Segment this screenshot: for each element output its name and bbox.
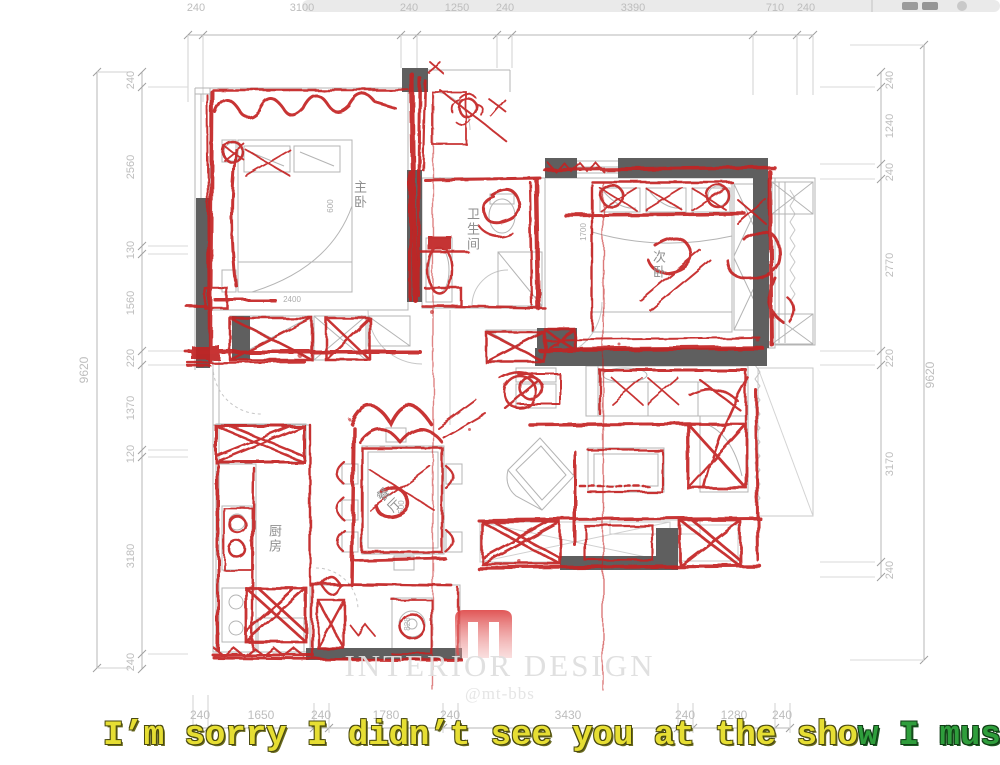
dim-label: 3390 [621, 2, 645, 14]
dim-label: 710 [766, 2, 784, 14]
dim-label: 600 [326, 199, 335, 213]
chrome-button-icon[interactable] [922, 2, 938, 10]
master-bed [222, 140, 352, 292]
dim-label: 3180 [125, 544, 137, 568]
room-label-kitchen: 厨房 [268, 524, 281, 554]
dim-label: 2560 [125, 155, 137, 179]
chrome-button-icon[interactable] [902, 2, 918, 10]
dim-label: 9620 [77, 356, 91, 383]
dim-label: 9620 [923, 361, 937, 388]
lounge-chair [507, 438, 574, 510]
dim-label: 240 [884, 561, 896, 579]
dimension-chain-left-inner: 240 2560 130 1560 220 1370 120 3180 240 [125, 68, 188, 673]
dim-label: 1560 [125, 291, 137, 315]
dim-label: 240 [125, 71, 137, 89]
washing-machine [392, 598, 432, 652]
dim-label: 220 [884, 349, 896, 367]
red-markup-layer [186, 62, 795, 690]
dim-label: 130 [125, 241, 137, 259]
room-label-bathroom: 卫生间 [466, 207, 479, 252]
dim-label: 240 [884, 71, 896, 89]
room-label-master-bedroom: 主卧 [353, 180, 366, 210]
dim-label: 1370 [125, 396, 137, 420]
subtitle-sung: I’m sorry I didn’t see you at the sho [103, 717, 858, 755]
red-hall-sketch [352, 95, 560, 690]
room-label-second-bedroom: 次卧 [652, 250, 665, 280]
dim-label: 1700 [579, 223, 588, 241]
screenshot-root: 240 3100 240 1250 240 3390 710 240 240 [0, 0, 1000, 765]
dimension-chain-left-outer: 9620 [77, 68, 130, 672]
dim-label: 220 [125, 349, 137, 367]
subtitle-bar: I’m sorry I didn’t see you at the show I… [103, 717, 1000, 755]
dim-label: 240 [884, 163, 896, 181]
red-master-sketch [186, 90, 420, 366]
dim-label: 240 [187, 2, 205, 14]
dimension-chain-top: 240 3100 240 1250 240 3390 710 240 [184, 2, 817, 102]
sofa-set [516, 366, 748, 492]
dimension-chain-right-inner: 240 1240 240 2770 220 3170 240 [820, 68, 896, 581]
chrome-circle-icon[interactable] [957, 1, 967, 11]
wall-segment [656, 528, 678, 570]
dim-label: 2770 [884, 253, 896, 277]
watermark-title: INTERIOR DESIGN [0, 648, 1000, 684]
wall-segment [545, 158, 577, 178]
dining-set [342, 428, 462, 570]
dim-label: 3100 [290, 2, 314, 14]
dim-label: 120 [125, 445, 137, 463]
dim-label: 1250 [445, 2, 469, 14]
red-living-sketch [478, 370, 760, 568]
dim-label: 3170 [884, 452, 896, 476]
dim-label: 828 [403, 617, 412, 631]
dim-label: 2400 [283, 295, 301, 304]
dim-label: 240 [496, 2, 514, 14]
dim-label: 240 [400, 2, 418, 14]
subtitle-upcoming: w I musta [858, 717, 1000, 755]
dim-label: 240 [797, 2, 815, 14]
walls-layer [196, 68, 769, 660]
watermark-handle: @mt-bbs [0, 684, 1000, 704]
dim-label: 1240 [884, 114, 896, 138]
